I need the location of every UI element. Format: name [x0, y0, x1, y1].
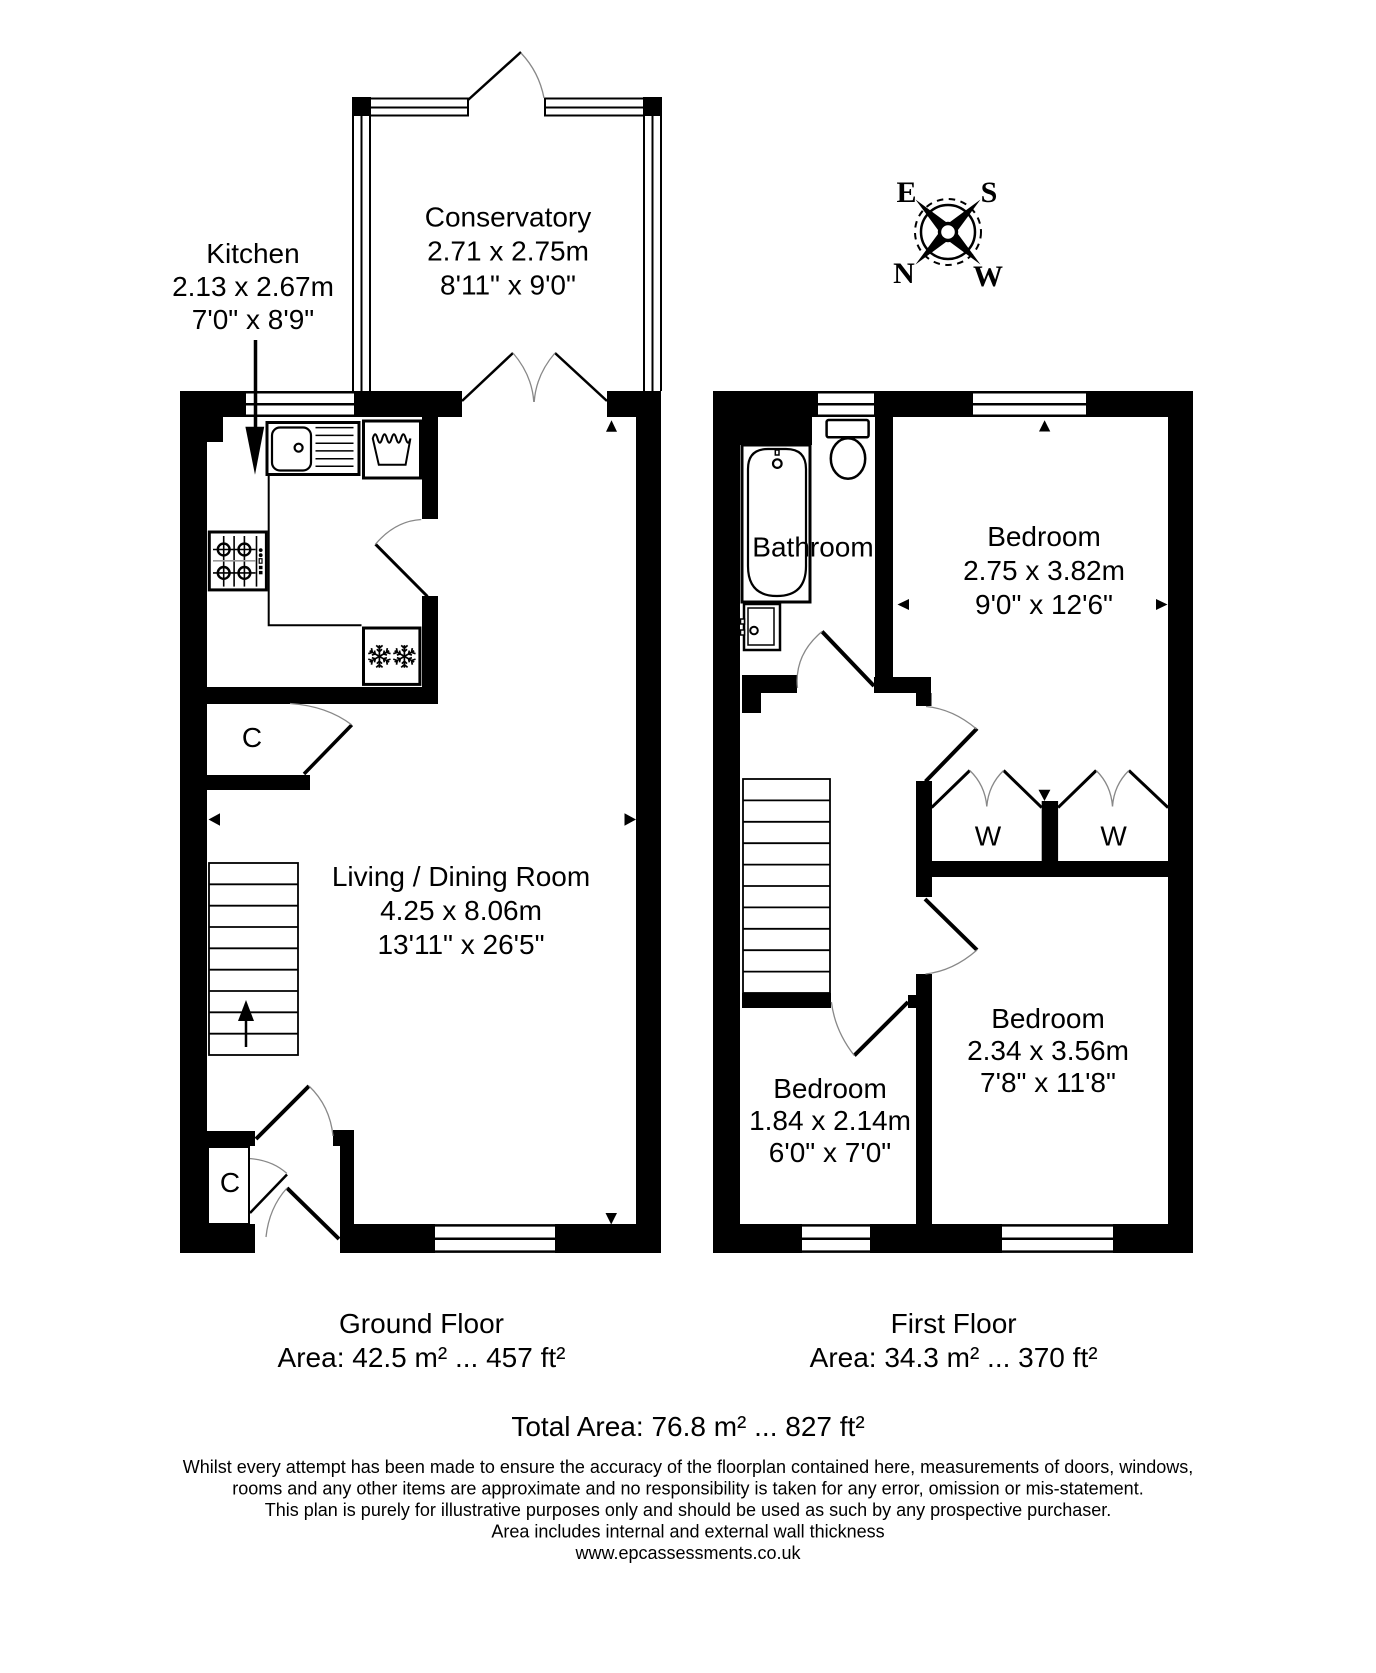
svg-text:1.84 x 2.14m: 1.84 x 2.14m	[749, 1105, 911, 1136]
svg-text:Ground Floor: Ground Floor	[339, 1308, 504, 1339]
svg-text:9'0" x 12'6": 9'0" x 12'6"	[975, 589, 1113, 620]
svg-text:Whilst every attempt has been: Whilst every attempt has been made to en…	[183, 1457, 1194, 1477]
svg-text:rooms and any other items are: rooms and any other items are approximat…	[232, 1479, 1143, 1499]
svg-text:Kitchen: Kitchen	[206, 238, 299, 269]
svg-text:7'8" x 11'8": 7'8" x 11'8"	[980, 1067, 1116, 1098]
svg-text:Bathroom: Bathroom	[752, 532, 873, 563]
svg-text:S: S	[981, 176, 998, 209]
svg-text:W: W	[973, 260, 1003, 293]
svg-text:www.epcassessments.co.uk: www.epcassessments.co.uk	[574, 1543, 801, 1563]
svg-text:W: W	[975, 821, 1002, 852]
svg-text:2.71 x 2.75m: 2.71 x 2.75m	[427, 236, 589, 267]
svg-text:13'11" x 26'5": 13'11" x 26'5"	[377, 929, 544, 960]
svg-text:2.13 x 2.67m: 2.13 x 2.67m	[172, 271, 334, 302]
svg-text:6'0" x 7'0": 6'0" x 7'0"	[769, 1137, 891, 1168]
svg-text:Bedroom: Bedroom	[991, 1003, 1105, 1034]
svg-text:4.25 x 8.06m: 4.25 x 8.06m	[380, 895, 542, 926]
svg-text:2.34 x 3.56m: 2.34 x 3.56m	[967, 1035, 1129, 1066]
svg-text:Bedroom: Bedroom	[773, 1073, 887, 1104]
svg-text:Area includes internal and ext: Area includes internal and external wall…	[491, 1522, 884, 1542]
svg-text:Conservatory: Conservatory	[425, 202, 592, 233]
svg-text:W: W	[1100, 821, 1127, 852]
svg-text:2.75 x 3.82m: 2.75 x 3.82m	[963, 555, 1125, 586]
svg-text:Area: 34.3 m² ... 370 ft²: Area: 34.3 m² ... 370 ft²	[810, 1342, 1098, 1373]
svg-text:Area: 42.5 m² ... 457 ft²: Area: 42.5 m² ... 457 ft²	[278, 1342, 566, 1373]
svg-text:E: E	[896, 176, 916, 209]
svg-text:C: C	[242, 722, 262, 753]
svg-text:This plan is purely for illust: This plan is purely for illustrative pur…	[265, 1500, 1111, 1520]
svg-text:C: C	[220, 1167, 240, 1198]
svg-text:N: N	[893, 257, 915, 290]
svg-text:8'11" x 9'0": 8'11" x 9'0"	[440, 270, 576, 301]
svg-text:Bedroom: Bedroom	[987, 521, 1101, 552]
svg-text:Living / Dining Room: Living / Dining Room	[332, 861, 590, 892]
svg-text:7'0" x 8'9": 7'0" x 8'9"	[192, 304, 314, 335]
svg-text:First Floor: First Floor	[891, 1308, 1017, 1339]
svg-text:Total Area: 76.8 m² ... 827 ft: Total Area: 76.8 m² ... 827 ft²	[511, 1411, 864, 1442]
